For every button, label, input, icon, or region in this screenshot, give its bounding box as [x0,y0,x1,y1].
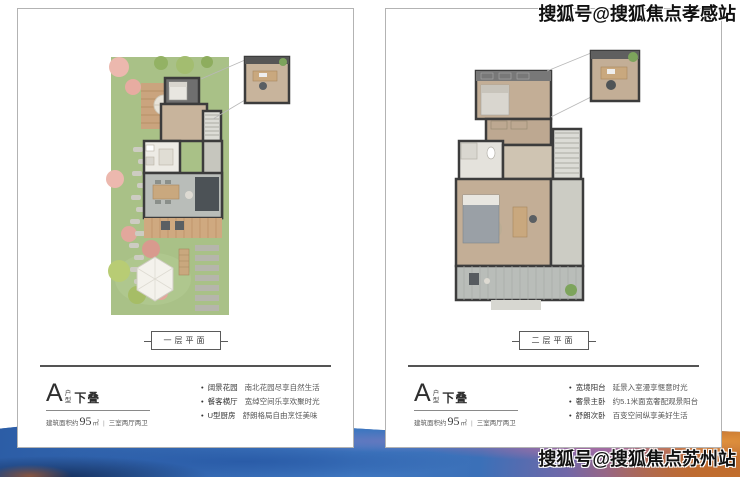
unit-type-stack: 户 型 [433,390,440,404]
layout-text: 三室两厅两卫 [109,421,148,428]
floor-label-second: 二层平面 [519,331,589,350]
title-underline [414,410,518,411]
area-line: 建筑面积约95㎡ | 三室两厅两卫 [414,415,526,427]
separator: | [103,421,105,428]
floor-label-text: 一层平面 [164,336,208,345]
unit-title: A 户 型 下叠 [46,381,158,406]
unit-letter: A [414,381,431,406]
unit-suffix: 下叠 [442,392,468,404]
feature-item: 餐客横厅宽绰空间乐享欢聚时光 [201,395,339,409]
area-unit: ㎡ [461,421,468,428]
layout-text: 三室两厅两卫 [477,421,516,428]
feature-item: U型厨房舒朗格局自由烹饪美味 [201,409,339,423]
unit-title-block: A 户 型 下叠 建筑面积约95㎡ | 三室两厅两卫 [46,381,158,427]
floorplan-card-first-floor: 一层平面 A 户 型 下叠 建筑面积约95㎡ | 三室两厅两卫 [17,8,354,448]
unit-info: A 户 型 下叠 建筑面积约95㎡ | 三室两厅两卫 阔景花园南北花园尽享自然生… [46,381,339,427]
feature-item: 奢景主卧约5.1米面宽奢配观景阳台 [569,395,707,409]
unit-title-block: A 户 型 下叠 建筑面积约95㎡ | 三室两厅两卫 [414,381,526,427]
feature-item: 舒朗次卧百变空间纵享美好生活 [569,409,707,423]
watermark-bottom: 搜狐号@搜狐焦点苏州站 [538,445,736,471]
divider [408,365,699,367]
feature-item: 宽境阳台延景入室漫享惬意时光 [569,381,707,395]
floorplan-card-second-floor: 二层平面 A 户 型 下叠 建筑面积约95㎡ | 三室两厅两卫 [385,8,722,448]
house-rooms [456,71,583,300]
watermark-top: 搜狐号@搜狐焦点孝感站 [538,0,736,26]
second-floor-plan [451,47,651,343]
area-value: 95 [448,415,460,427]
first-floor-plan [103,49,293,321]
connector-lines [547,53,591,117]
area-unit: ㎡ [93,421,100,428]
area-prefix: 建筑面积约 [46,421,79,428]
feature-item: 阔景花园南北花园尽享自然生活 [201,381,339,395]
title-underline [46,410,150,411]
area-prefix: 建筑面积约 [414,421,447,428]
inset-room [245,57,289,103]
unit-title: A 户 型 下叠 [414,381,526,406]
bottom-deck [144,218,222,238]
floor-label-text: 二层平面 [532,336,576,345]
divider [40,365,331,367]
unit-suffix: 下叠 [74,392,100,404]
feature-list: 阔景花园南北花园尽享自然生活 餐客横厅宽绰空间乐享欢聚时光 U型厨房舒朗格局自由… [201,381,339,423]
unit-letter: A [46,381,63,406]
unit-info: A 户 型 下叠 建筑面积约95㎡ | 三室两厅两卫 宽境阳台延景入室漫享惬意时… [414,381,707,427]
area-line: 建筑面积约95㎡ | 三室两厅两卫 [46,415,158,427]
floor-label-first: 一层平面 [151,331,221,350]
page: 一层平面 A 户 型 下叠 建筑面积约95㎡ | 三室两厅两卫 [0,0,740,477]
inset-room [591,51,639,101]
feature-list: 宽境阳台延景入室漫享惬意时光 奢景主卧约5.1米面宽奢配观景阳台 舒朗次卧百变空… [569,381,707,423]
area-value: 95 [80,415,92,427]
unit-type-stack: 户 型 [65,390,72,404]
separator: | [471,421,473,428]
